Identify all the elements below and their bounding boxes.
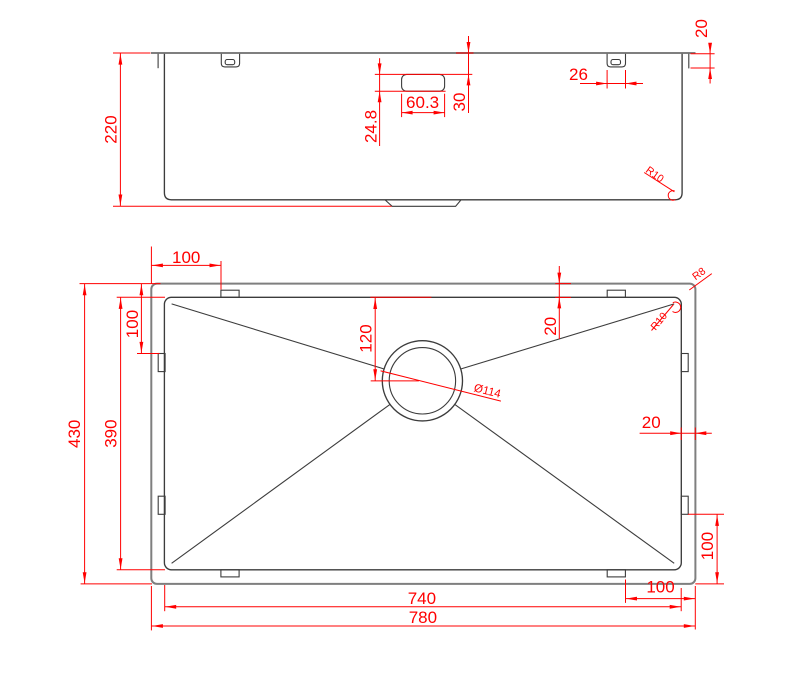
svg-text:20: 20 [692, 19, 711, 38]
svg-text:20: 20 [541, 317, 560, 336]
svg-text:220: 220 [101, 115, 120, 143]
svg-text:30: 30 [450, 93, 469, 112]
svg-text:100: 100 [698, 532, 717, 560]
svg-text:100: 100 [646, 578, 674, 597]
svg-text:740: 740 [408, 589, 436, 608]
svg-text:100: 100 [172, 248, 200, 267]
svg-text:26: 26 [569, 65, 588, 84]
svg-text:100: 100 [123, 310, 142, 338]
svg-text:430: 430 [65, 420, 84, 448]
svg-text:120: 120 [356, 324, 375, 352]
svg-text:20: 20 [642, 413, 661, 432]
svg-text:780: 780 [409, 608, 437, 627]
svg-text:390: 390 [101, 419, 120, 447]
svg-text:24.8: 24.8 [361, 110, 380, 143]
svg-text:60.3: 60.3 [406, 93, 439, 112]
